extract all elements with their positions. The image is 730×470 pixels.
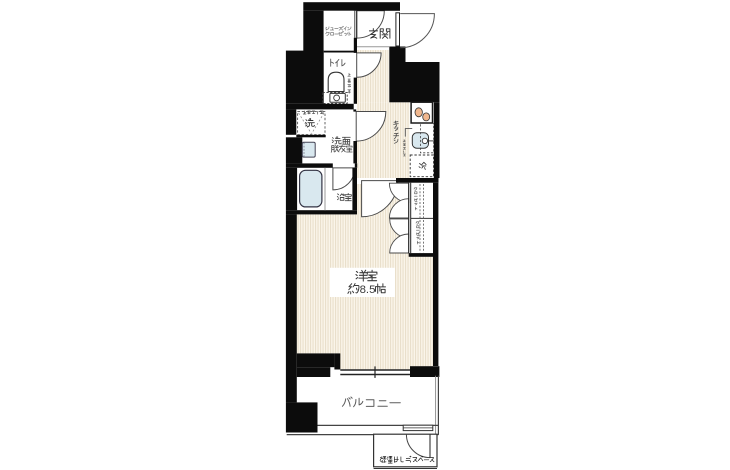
svg-text:8.5: 8.5 [360,284,376,296]
